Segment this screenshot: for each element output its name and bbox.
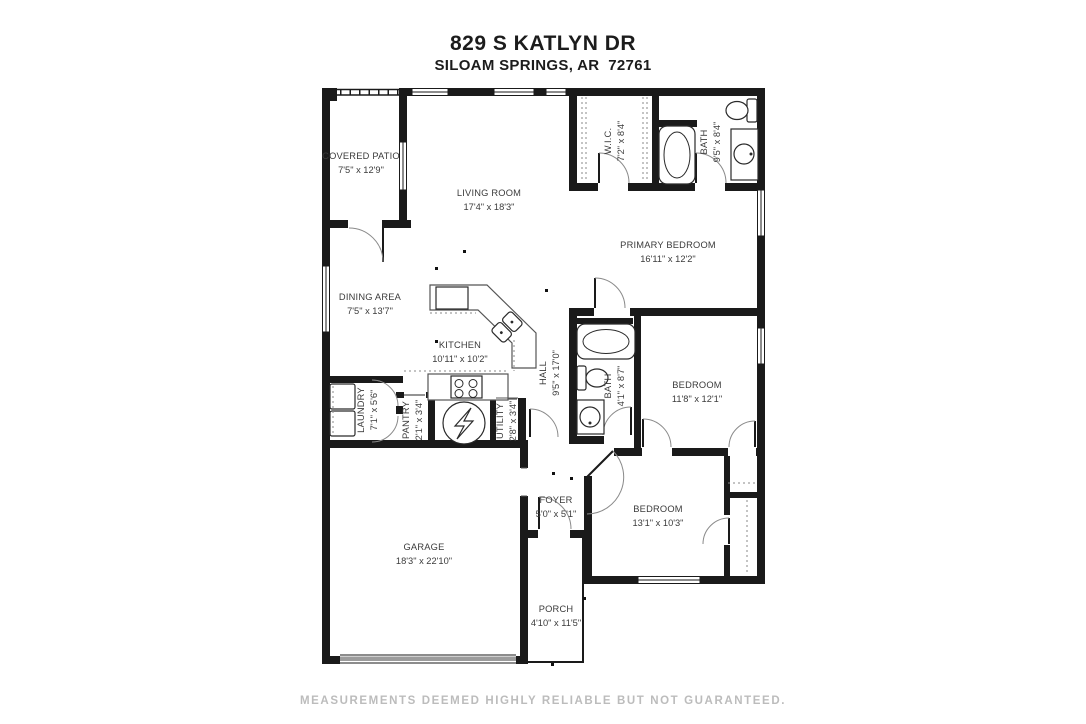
door-arc-utility-hall [530,409,558,437]
svg-text:7'2" x 8'4": 7'2" x 8'4" [616,121,626,162]
svg-text:9'5" x 8'4": 9'5" x 8'4" [712,122,722,163]
disclaimer-text: MEASUREMENTS DEEMED HIGHLY RELIABLE BUT … [0,695,1086,707]
svg-text:11'8" x 12'1": 11'8" x 12'1" [672,394,722,404]
door-arc-primary [595,278,625,308]
washer-icon [330,384,355,409]
svg-text:2'8" x 3'4": 2'8" x 3'4" [508,401,518,442]
room-label-bath-mid: BATH 4'1" x 8'7" [603,366,626,407]
room-label-wic: W.I.C. 7'2" x 8'4" [603,121,626,162]
svg-text:BATH: BATH [603,374,613,399]
porch-outline [528,536,583,662]
svg-text:4'1" x 8'7": 4'1" x 8'7" [616,366,626,407]
svg-text:DINING AREA: DINING AREA [339,292,402,302]
svg-text:18'3" x 22'10": 18'3" x 22'10" [396,556,452,566]
patio-railing [337,90,400,96]
room-label-hall: HALL 9'5" x 17'0" [538,350,561,396]
door-arc-closet-bottom [703,518,729,544]
svg-text:PANTRY: PANTRY [401,401,411,439]
stove-icon [451,376,482,398]
svg-text:FOYER: FOYER [539,495,572,505]
door-arc-patio [349,228,383,262]
svg-text:7'5" x 13'7": 7'5" x 13'7" [347,306,393,316]
water-heater-icon [443,402,485,444]
svg-text:BEDROOM: BEDROOM [633,504,682,514]
floorplan-drawing: COVERED PATIO 7'5" x 12'9" LIVING ROOM 1… [0,0,1086,724]
svg-text:LIVING ROOM: LIVING ROOM [457,188,521,198]
door-arc-bedroom-mid [643,419,671,447]
window [494,89,534,96]
room-label-pantry: PANTRY 2'1" x 3'4" [401,400,424,441]
room-label-utility: UTILITY 2'8" x 3'4" [495,401,518,442]
room-label-living-room: LIVING ROOM 17'4" x 18'3" [457,188,521,212]
room-label-primary-bedroom: PRIMARY BEDROOM 16'11" x 12'2" [620,240,716,264]
window [412,89,448,96]
svg-text:W.I.C.: W.I.C. [603,128,613,155]
svg-text:HALL: HALL [538,361,548,385]
room-label-laundry: LAUNDRY 7'1" x 5'6" [356,387,379,433]
door-arc-bath-mid [603,407,631,435]
svg-text:PORCH: PORCH [539,604,574,614]
svg-text:16'11" x 12'2": 16'11" x 12'2" [640,254,695,264]
dryer-icon [330,411,355,436]
svg-text:10'11" x 10'2": 10'11" x 10'2" [432,354,487,364]
refrigerator-icon [436,287,468,309]
garage-door [340,654,516,666]
room-label-bedroom-mid: BEDROOM 11'8" x 12'1" [672,380,722,404]
svg-text:LAUNDRY: LAUNDRY [356,387,366,433]
svg-text:13'1" x 10'3": 13'1" x 10'3" [633,518,684,528]
svg-text:BEDROOM: BEDROOM [672,380,721,390]
toilet-icon [726,99,757,122]
svg-text:17'4" x 18'3": 17'4" x 18'3" [464,202,515,212]
room-label-kitchen: KITCHEN 10'11" x 10'2" [432,340,487,364]
window [758,190,765,236]
floorplan-page: 829 S KATLYN DR SILOAM SPRINGS, AR 72761 [0,0,1086,724]
svg-text:BATH: BATH [699,130,709,155]
svg-text:5'0" x 5'1": 5'0" x 5'1" [536,509,577,519]
room-label-covered-patio: COVERED PATIO 7'5" x 12'9" [322,151,400,175]
svg-text:GARAGE: GARAGE [404,542,445,552]
svg-text:7'5" x 12'9": 7'5" x 12'9" [338,165,384,175]
svg-text:COVERED PATIO: COVERED PATIO [322,151,400,161]
svg-text:UTILITY: UTILITY [495,403,505,439]
room-label-garage: GARAGE 18'3" x 22'10" [396,542,452,566]
door-arc-closet-mid [729,421,755,447]
svg-text:PRIMARY BEDROOM: PRIMARY BEDROOM [620,240,716,250]
door-garage-foyer [521,468,527,496]
svg-text:2'1" x 3'4": 2'1" x 3'4" [414,400,424,441]
vanity-sink-icon [731,129,758,180]
door-arc-bedroom-bottom [587,451,624,514]
room-label-dining-area: DINING AREA 7'5" x 13'7" [339,292,402,316]
vanity-sink-icon [577,400,604,434]
window [758,328,765,364]
window [638,577,700,584]
svg-text:4'10" x 11'5": 4'10" x 11'5" [531,618,581,628]
svg-text:9'5" x 17'0": 9'5" x 17'0" [551,350,561,396]
room-label-foyer: FOYER 5'0" x 5'1" [536,495,577,519]
window [400,142,407,190]
room-label-porch: PORCH 4'10" x 11'5" [531,604,581,628]
svg-text:7'1" x 5'6": 7'1" x 5'6" [369,390,379,431]
doors [349,153,755,544]
room-label-bedroom-bottom: BEDROOM 13'1" x 10'3" [633,504,684,528]
window [546,89,566,96]
window [323,266,330,332]
svg-text:KITCHEN: KITCHEN [439,340,481,350]
